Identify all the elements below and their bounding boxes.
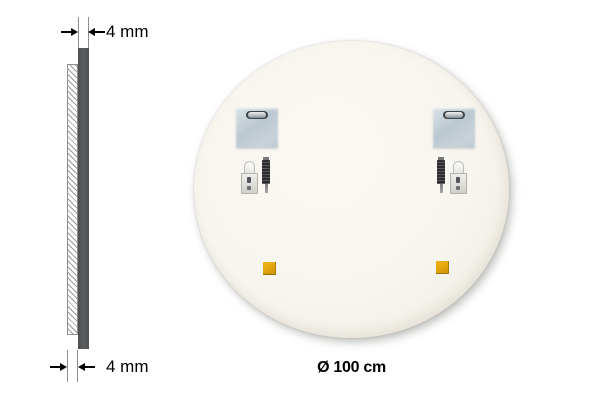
wall-hook-plate-right <box>450 173 467 194</box>
hanger-slot-highlight <box>445 112 463 118</box>
screw-right <box>437 157 445 193</box>
screw-thread <box>437 160 445 184</box>
mirror-product-diagram: 4 mm 4 mm <box>0 0 600 400</box>
arrow-left-icon <box>78 363 85 371</box>
dimension-arrow <box>50 366 60 368</box>
mounting-plate-right <box>433 108 475 148</box>
hook-slit-icon <box>456 186 460 190</box>
arrow-left-icon <box>88 28 95 36</box>
hanger-slot-icon <box>246 111 268 119</box>
hook-slit-icon <box>247 186 251 190</box>
screw-thread <box>262 160 270 184</box>
screw-left <box>262 157 270 193</box>
screw-tip <box>440 184 443 193</box>
hook-slit-icon <box>247 177 251 183</box>
dimension-extension-line <box>67 350 68 382</box>
arrow-right-icon <box>71 28 78 36</box>
adhesive-pad-right <box>436 261 449 274</box>
wall-hook-plate-left <box>241 173 258 194</box>
dimension-arrow <box>85 366 95 368</box>
hanger-slot-icon <box>443 111 465 119</box>
arrow-right-icon <box>60 363 67 371</box>
dimension-arrow <box>61 31 71 33</box>
dimension-extension-line <box>78 17 79 48</box>
mirror-glass-section <box>78 48 89 349</box>
mounting-plate-left <box>236 108 278 148</box>
diameter-label: Ø 100 cm <box>194 360 509 376</box>
hanger-slot-highlight <box>248 112 266 118</box>
dimension-arrow <box>95 31 105 33</box>
hook-slit-icon <box>456 177 460 183</box>
adhesive-pad-left <box>263 262 276 275</box>
thickness-label-bottom: 4 mm <box>106 358 149 375</box>
mirror-backing-section <box>67 64 78 335</box>
screw-tip <box>265 184 268 193</box>
thickness-label-top: 4 mm <box>106 23 149 40</box>
